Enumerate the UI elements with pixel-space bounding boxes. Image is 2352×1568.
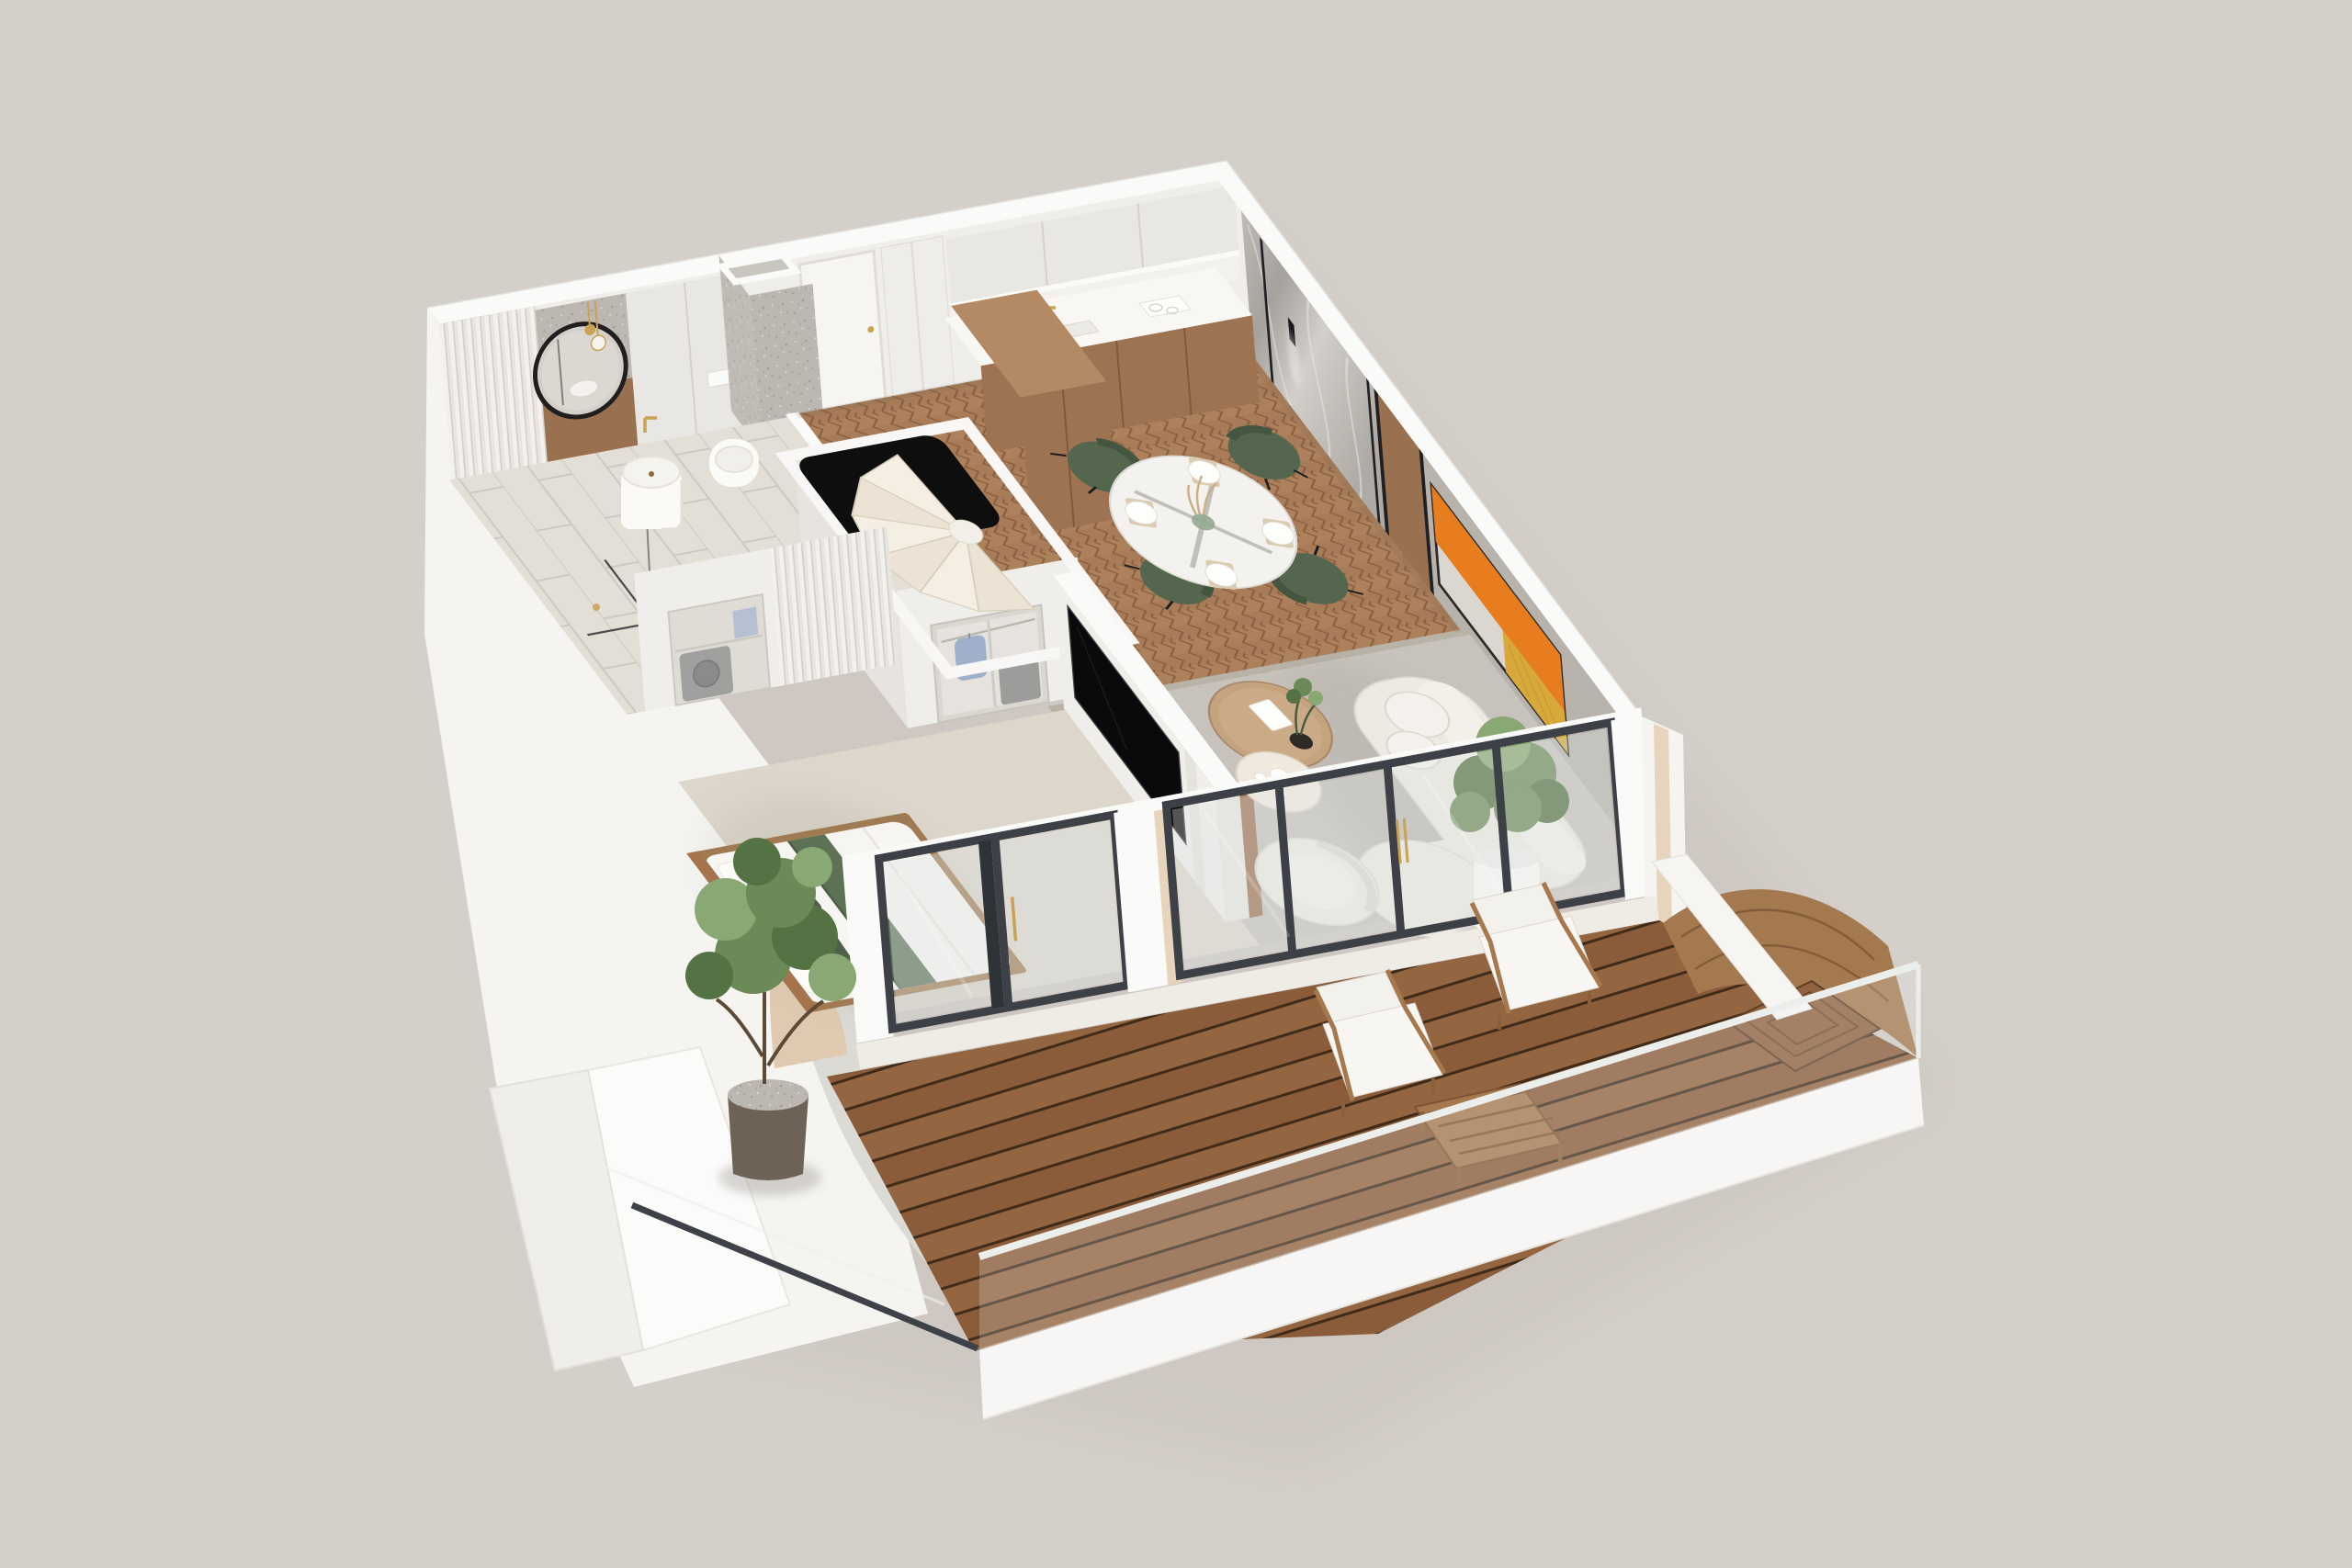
floorplan-svg — [0, 0, 2352, 1568]
floorplan-render — [0, 0, 2352, 1568]
fluted-panel — [439, 307, 548, 480]
pot-top — [728, 1079, 808, 1111]
freestanding-sink — [621, 457, 682, 529]
towels — [732, 607, 758, 639]
shower-drain — [593, 604, 600, 611]
fluted-wardrobe-front — [770, 526, 899, 685]
washer-niche — [668, 594, 769, 705]
wall-hung-toilet — [709, 439, 759, 487]
